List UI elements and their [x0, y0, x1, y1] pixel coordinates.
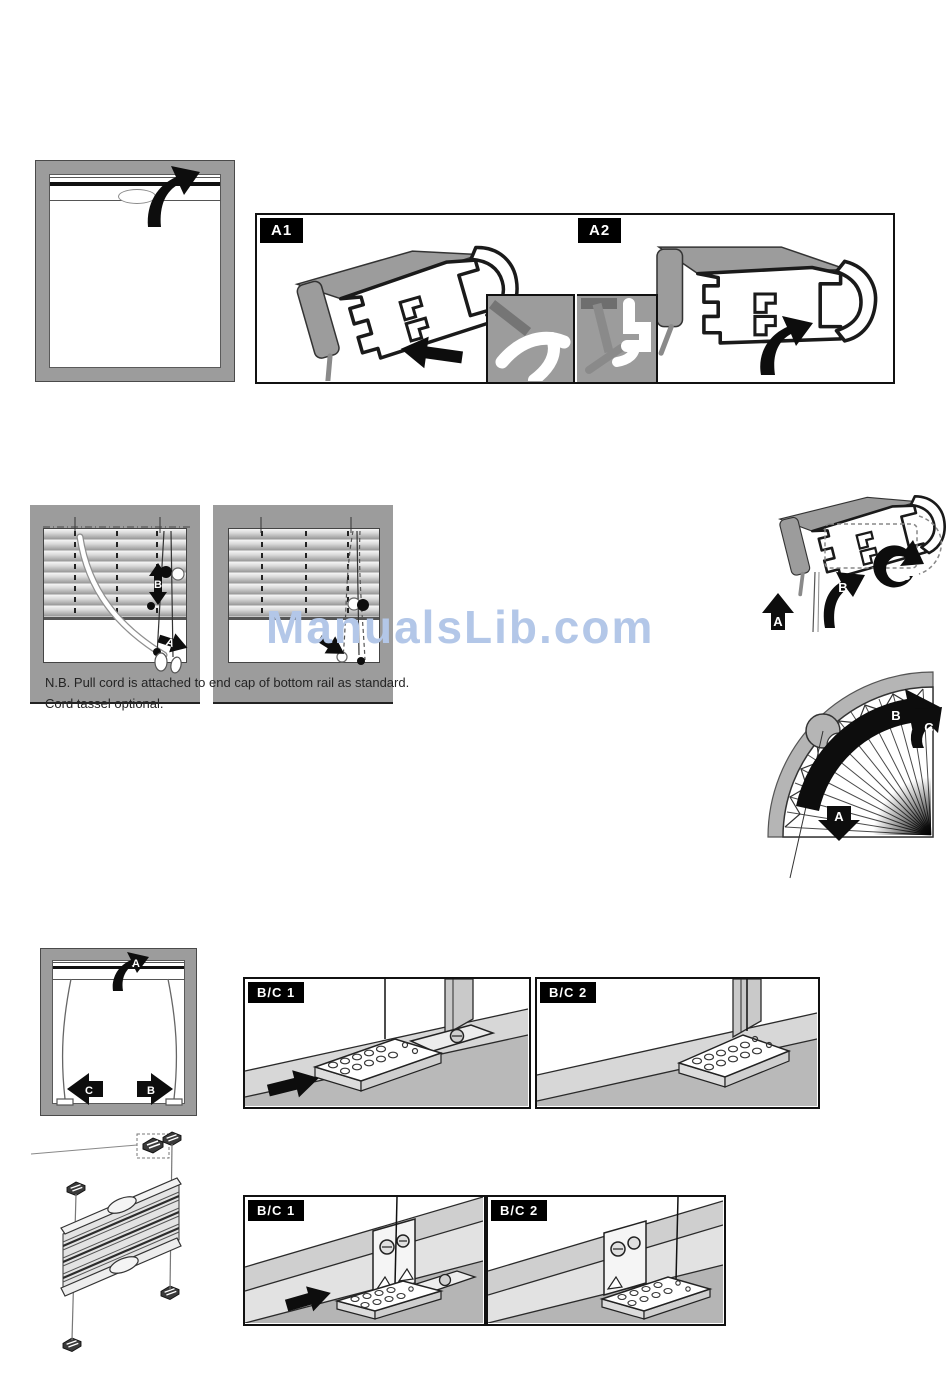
clip-detail-drawing — [577, 296, 653, 381]
panel-bc1-bracket: B/C 1 — [243, 1195, 486, 1326]
bracket-icon — [143, 1138, 163, 1153]
curved-up-arrow-icon: A — [113, 952, 149, 991]
cord-tassel — [57, 1099, 73, 1105]
clip-detail-drawing — [488, 296, 572, 381]
clip-detail-inset-a1 — [486, 294, 575, 384]
figure-headrail-release — [35, 160, 235, 382]
panel-bc2-label: B/C 2 — [491, 1200, 547, 1221]
bracket-icon — [67, 1182, 85, 1196]
figure-rail-tilt-abc: A B C — [753, 480, 950, 635]
left-cord — [63, 979, 71, 1099]
panel-a1-label: A1 — [260, 218, 303, 243]
curved-up-arrow-icon — [134, 163, 206, 235]
mount-bracket — [604, 1221, 646, 1295]
panel-bc1-sill: B/C 1 — [243, 977, 531, 1109]
watermark: ManualsLib.com — [266, 600, 654, 654]
panel-bc2-bracket: B/C 2 — [486, 1195, 726, 1326]
arrow-up-icon: A — [762, 593, 794, 630]
note-text: N.B. Pull cord is attached to end cap of… — [45, 672, 415, 714]
panel-bc1-label: B/C 1 — [248, 1200, 304, 1221]
panel-bc2-sill: B/C 2 — [535, 977, 820, 1109]
note-line-2: Cord tassel optional. — [45, 693, 415, 714]
bracket-icon — [63, 1338, 81, 1352]
arrow-letter-c: C — [901, 568, 911, 583]
arrow-letter-b: B — [154, 579, 162, 591]
bracket-icon — [163, 1132, 181, 1146]
arrow-letter-b: B — [838, 580, 847, 595]
arrow-letter-a: A — [834, 809, 844, 824]
figure-window-cords: A C B — [40, 948, 197, 1116]
curved-right-arrow-icon: B — [824, 572, 865, 628]
arrow-letter-b: B — [891, 708, 900, 723]
panel-bc2-label: B/C 2 — [540, 982, 596, 1003]
arrow-letter-a: A — [773, 614, 783, 629]
figure-fan-blind: B C A — [763, 656, 948, 881]
right-cord — [168, 979, 176, 1099]
clip-detail-inset-a2 — [577, 294, 658, 384]
pull-cord — [813, 572, 815, 632]
cord-tassel — [166, 1099, 182, 1105]
pull-cord — [818, 572, 819, 632]
figure-tensioned-blind — [25, 1128, 220, 1378]
cords-and-arrows-overlay: A C B — [41, 949, 198, 1117]
callout-line — [31, 1145, 137, 1154]
note-line-1: N.B. Pull cord is attached to end cap of… — [45, 672, 415, 693]
arrow-letter-c: C — [85, 1085, 93, 1097]
manual-page: A1 A2 — [0, 0, 950, 1379]
arrow-letter-a: A — [132, 958, 140, 970]
panel-a2-label: A2 — [578, 218, 621, 243]
frame-edge — [934, 666, 946, 837]
panel-bc1-label: B/C 1 — [248, 982, 304, 1003]
arrow-letter-c: C — [924, 720, 934, 735]
arrow-letter-b: B — [147, 1085, 155, 1097]
